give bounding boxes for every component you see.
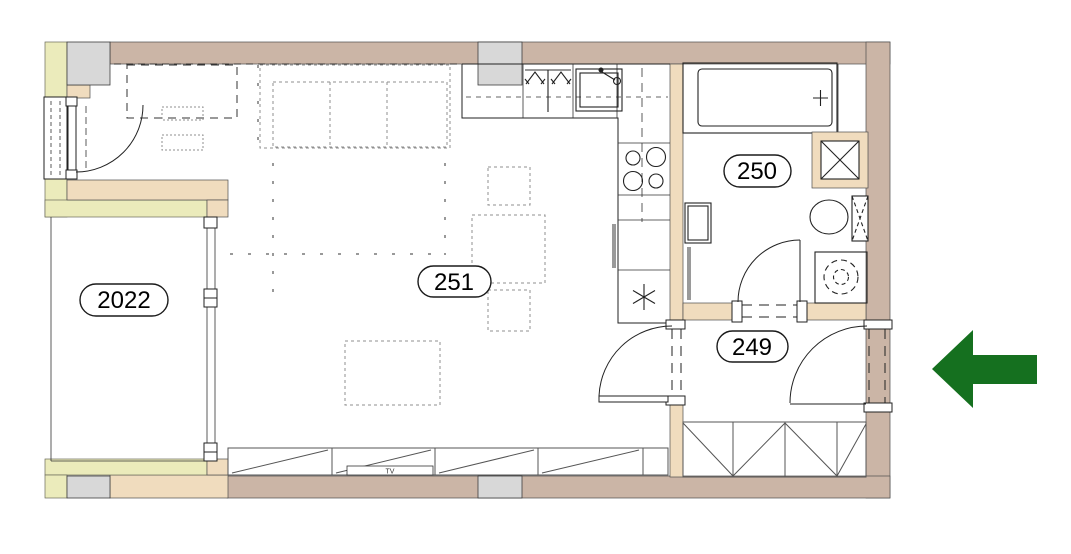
wall-balcony-top-yellow [45, 200, 207, 217]
window-sidelight [44, 97, 67, 179]
door-opening-dash [672, 329, 681, 396]
counter-column-dividers [618, 143, 670, 270]
washbasin-icon [685, 203, 711, 243]
door-jamb [66, 170, 77, 179]
cabinet-icon [162, 135, 203, 150]
door-jamb [666, 320, 685, 329]
door-jamb [666, 396, 685, 405]
closet-dividers [330, 82, 387, 147]
wall-balcony-top [67, 180, 228, 200]
door-swing-icon [790, 326, 867, 403]
wall-hall-bath-left [683, 303, 732, 320]
balcony-door [44, 97, 143, 179]
wall-hall-bath-right [807, 303, 866, 320]
rug-icon [345, 341, 440, 405]
kitchen-sink-icon [576, 68, 622, 112]
room-label-249: 249 [732, 334, 772, 361]
door-leaf [599, 396, 668, 402]
wall-right [866, 42, 890, 498]
railing-post [204, 289, 217, 298]
railing-post [204, 452, 217, 461]
dish-rack-icon [525, 70, 571, 112]
door-jamb [864, 320, 892, 329]
washing-machine-icon [815, 252, 867, 303]
door-jamb [66, 97, 77, 106]
door-leaf [68, 106, 76, 170]
closet-inner [273, 82, 447, 147]
entrance-arrow-icon [932, 330, 1037, 408]
counter-outline [462, 64, 670, 323]
room-label-2022: 2022 [97, 287, 150, 314]
living-hall-door [599, 320, 685, 405]
sideboard-icon: TV [228, 448, 668, 476]
toilet-icon [810, 196, 868, 241]
chair-icon [488, 290, 530, 331]
floor-plan: TV [0, 0, 1071, 554]
wall-bottom [227, 476, 890, 498]
bathroom [683, 63, 868, 322]
fridge-icon [633, 284, 655, 310]
wall-bottom-left-segment [110, 475, 228, 498]
door-jamb [797, 301, 807, 322]
railing-post [204, 298, 217, 307]
bath-platform-lines [683, 64, 866, 133]
wall-living-hall [670, 403, 683, 477]
room-label-250: 250 [737, 158, 777, 185]
balcony [51, 217, 217, 461]
door-jamb [732, 301, 742, 322]
hall-wardrobe-icon [683, 422, 866, 477]
wall-stub-top-left [67, 85, 90, 98]
ventilation-shaft-icon [812, 132, 868, 188]
room-label-251: 251 [434, 269, 474, 296]
door-opening-dash [742, 305, 797, 317]
wall-left-upper [45, 42, 67, 98]
wall-kitchen-bath [670, 64, 683, 322]
balcony-railing [51, 217, 216, 461]
railing-post [204, 443, 217, 452]
door-swing-icon [738, 240, 800, 302]
closet-outline [260, 65, 450, 148]
wardrobe-icon [127, 65, 237, 118]
radiator-icon [687, 247, 691, 300]
railing-post [204, 217, 217, 228]
dishwasher-handle [612, 224, 616, 268]
kitchen [462, 64, 670, 323]
floor-plan-canvas: TV [0, 0, 1071, 554]
chair-icon [488, 167, 530, 205]
door-jamb [864, 403, 892, 412]
bathtub-icon [683, 63, 837, 133]
column-top-left [67, 42, 110, 85]
living-room: TV [114, 64, 668, 476]
door-swing-icon [599, 326, 672, 396]
bathroom-door [732, 240, 807, 322]
wall-balcony-top-notch [207, 200, 228, 217]
tv-label: TV [386, 469, 395, 476]
wall-bottom-left-yellow [45, 475, 67, 498]
column-bottom-center [478, 476, 522, 498]
stove-icon [624, 148, 666, 191]
tub-tap-icon [813, 90, 828, 106]
column-bottom-left [67, 476, 110, 498]
